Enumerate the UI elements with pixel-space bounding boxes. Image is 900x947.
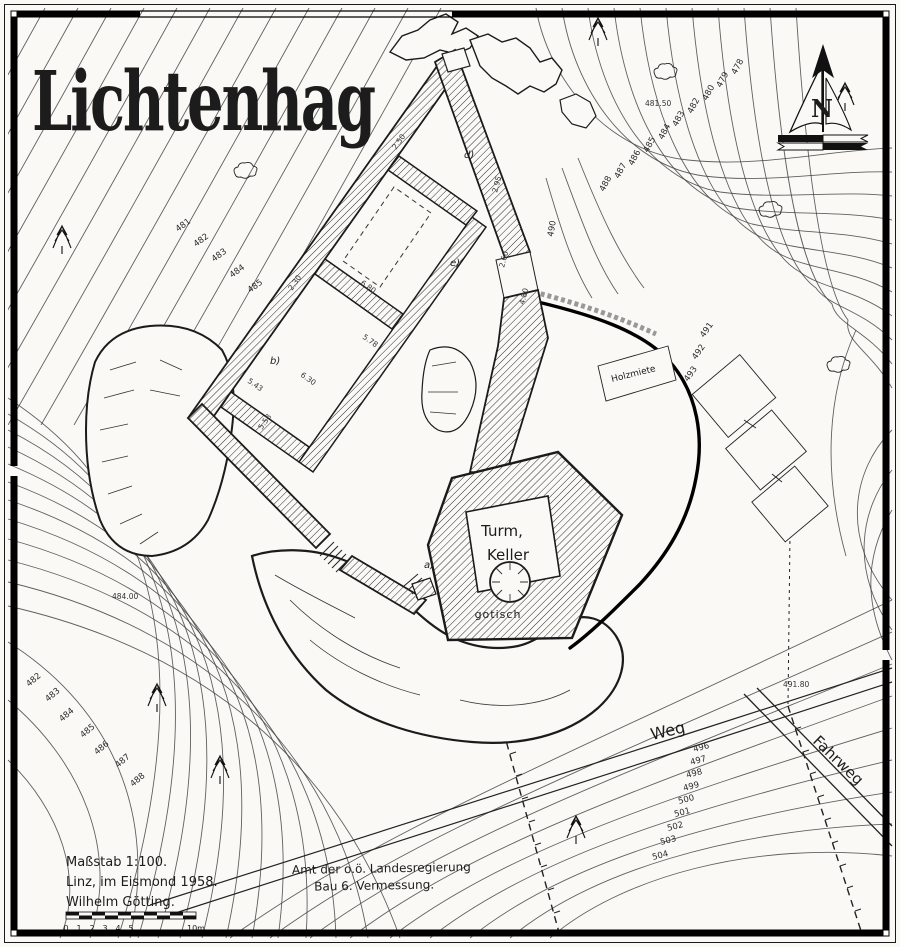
contour-label: 484 (58, 706, 77, 724)
contour-label: 483 (671, 109, 687, 128)
contour-label: 492 (690, 343, 708, 362)
legend-author: Wilhelm Götting. (66, 895, 175, 910)
corner-mark (11, 930, 17, 936)
marker-label-a: a) (424, 560, 434, 571)
spot-height: 491.80 (783, 680, 809, 689)
contour-label: 485 (642, 135, 658, 154)
scale-bar-cell (105, 916, 118, 920)
compass-ribbon-top-left (778, 135, 823, 142)
contour-label: 486 (93, 739, 112, 757)
legend-block: Maßstab 1:100. Linz, im Eismond 1958. Wi… (63, 855, 217, 933)
cliff-top-c (560, 94, 596, 128)
contour-label: 502 (666, 820, 684, 834)
compass-north-letter: N (811, 94, 833, 123)
contour-label: 487 (114, 752, 133, 770)
contour-label: 499 (682, 780, 700, 794)
contour-label: 491 (698, 321, 716, 340)
cliff-top-b (470, 34, 562, 94)
scale-bar-cell (118, 912, 131, 916)
measurement-label: 6.30 (299, 370, 318, 387)
fahrweg-road-line (744, 694, 892, 846)
marker-label-b: b) (270, 356, 280, 367)
agency-line1: Amt der o.ö. Landesregierung (292, 860, 471, 877)
corner-mark (883, 11, 889, 17)
spot-height: 484.00 (112, 592, 138, 601)
scale-bar-cell (144, 912, 157, 916)
spot-height: 481.50 (645, 99, 671, 108)
conifer-tree-icon (567, 816, 585, 844)
contour-label: 480 (701, 83, 717, 102)
contour-label: 500 (677, 793, 695, 807)
contour-label: 503 (659, 834, 677, 848)
contour-label: 486 (627, 148, 643, 167)
legend-scale-text: Maßstab 1:100. (66, 855, 167, 870)
contour-label: 478 (730, 57, 746, 76)
agency-line2: Bau 6. Vermessung. (314, 878, 434, 894)
partition-wall (315, 259, 403, 329)
fence-ticks (503, 729, 560, 913)
bush-icon (759, 201, 782, 217)
compass-ribbon-top-right (823, 135, 868, 142)
compass-ribbon-bottom-left (778, 143, 823, 150)
bush-icon (234, 162, 257, 178)
tower-style-note: gotisch (475, 608, 522, 621)
rock-courtyard (422, 347, 476, 432)
ring-wall-east-lower (470, 290, 548, 474)
contour-label: 497 (689, 754, 707, 768)
contour-label: 482 (686, 96, 702, 115)
conifer-tree-icon (211, 756, 229, 784)
marker-label-e: e) (450, 258, 460, 269)
conifer-tree-icon (148, 684, 166, 712)
contour-label: 485 (246, 278, 265, 296)
contour-label: 490 (546, 220, 559, 238)
contour-label: 501 (673, 806, 691, 820)
scale-bar-cell (131, 916, 144, 920)
partition-wall (388, 156, 477, 225)
bush-icon (827, 356, 850, 372)
contour-label: 496 (692, 741, 710, 755)
map-title: Lichtenhag (32, 54, 375, 150)
map-sheet: 481 482 483 484 485 482 483 484 485 486 … (0, 0, 900, 947)
outbuilding-link (744, 420, 756, 428)
contour-label: 493 (682, 365, 700, 384)
scale-bar-cell (92, 912, 105, 916)
contour-label: 483 (210, 247, 229, 265)
tower-label-line2: Keller (487, 546, 530, 564)
marker-label-d: d) (464, 150, 474, 161)
weg-label: Weg (649, 718, 687, 744)
measurement-label: 5.43 (246, 376, 265, 393)
corner-mark (883, 930, 889, 936)
scale-bar-cell (157, 916, 170, 920)
scale-bar-cell (183, 916, 196, 920)
contour-label: 488 (598, 174, 614, 193)
contour-lines-top-right (536, 8, 892, 388)
gate-trail (534, 292, 656, 334)
contour-label: 498 (685, 767, 703, 781)
tower-label-line1: Turm, (480, 522, 523, 540)
conifer-tree-icon (589, 18, 607, 46)
corner-mark (11, 11, 17, 17)
scale-bar-cell (170, 912, 183, 916)
legend-place-date: Linz, im Eismond 1958. (66, 875, 218, 890)
contour-label: 504 (651, 849, 669, 863)
agency-note: Amt der o.ö. Landesregierung Bau 6. Verm… (292, 860, 471, 894)
compass-ribbon-bottom-right (823, 143, 868, 150)
contour-label: 483 (44, 686, 63, 704)
fahrweg-label: Fahrweg (809, 732, 867, 789)
contour-label: 488 (129, 771, 148, 789)
contour-label: 481 (174, 217, 193, 235)
contour-label: 482 (25, 671, 44, 689)
scale-bar-cell (79, 916, 92, 920)
map-canvas: 481 482 483 484 485 482 483 484 485 486 … (0, 0, 900, 947)
compass-rose: N (778, 44, 868, 150)
contour-label: 479 (715, 70, 731, 89)
contour-label: 487 (613, 161, 629, 180)
conifer-tree-icon (53, 226, 71, 254)
scale-bar-cell (66, 912, 79, 916)
measurement-label: 5.78 (361, 332, 380, 349)
contour-label: 485 (79, 722, 98, 740)
